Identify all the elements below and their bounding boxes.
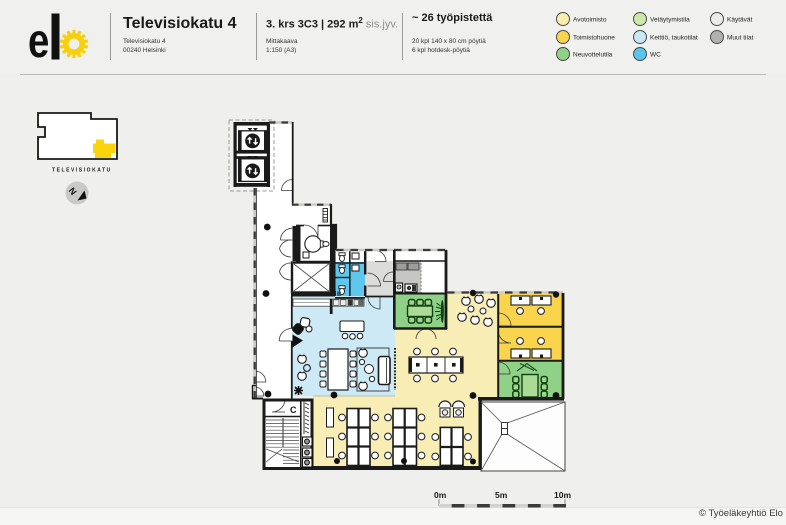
svg-text:C: C: [290, 405, 297, 415]
svg-text:0m: 0m: [434, 490, 447, 500]
svg-text:5m: 5m: [495, 490, 508, 500]
svg-text:10m: 10m: [554, 490, 571, 500]
